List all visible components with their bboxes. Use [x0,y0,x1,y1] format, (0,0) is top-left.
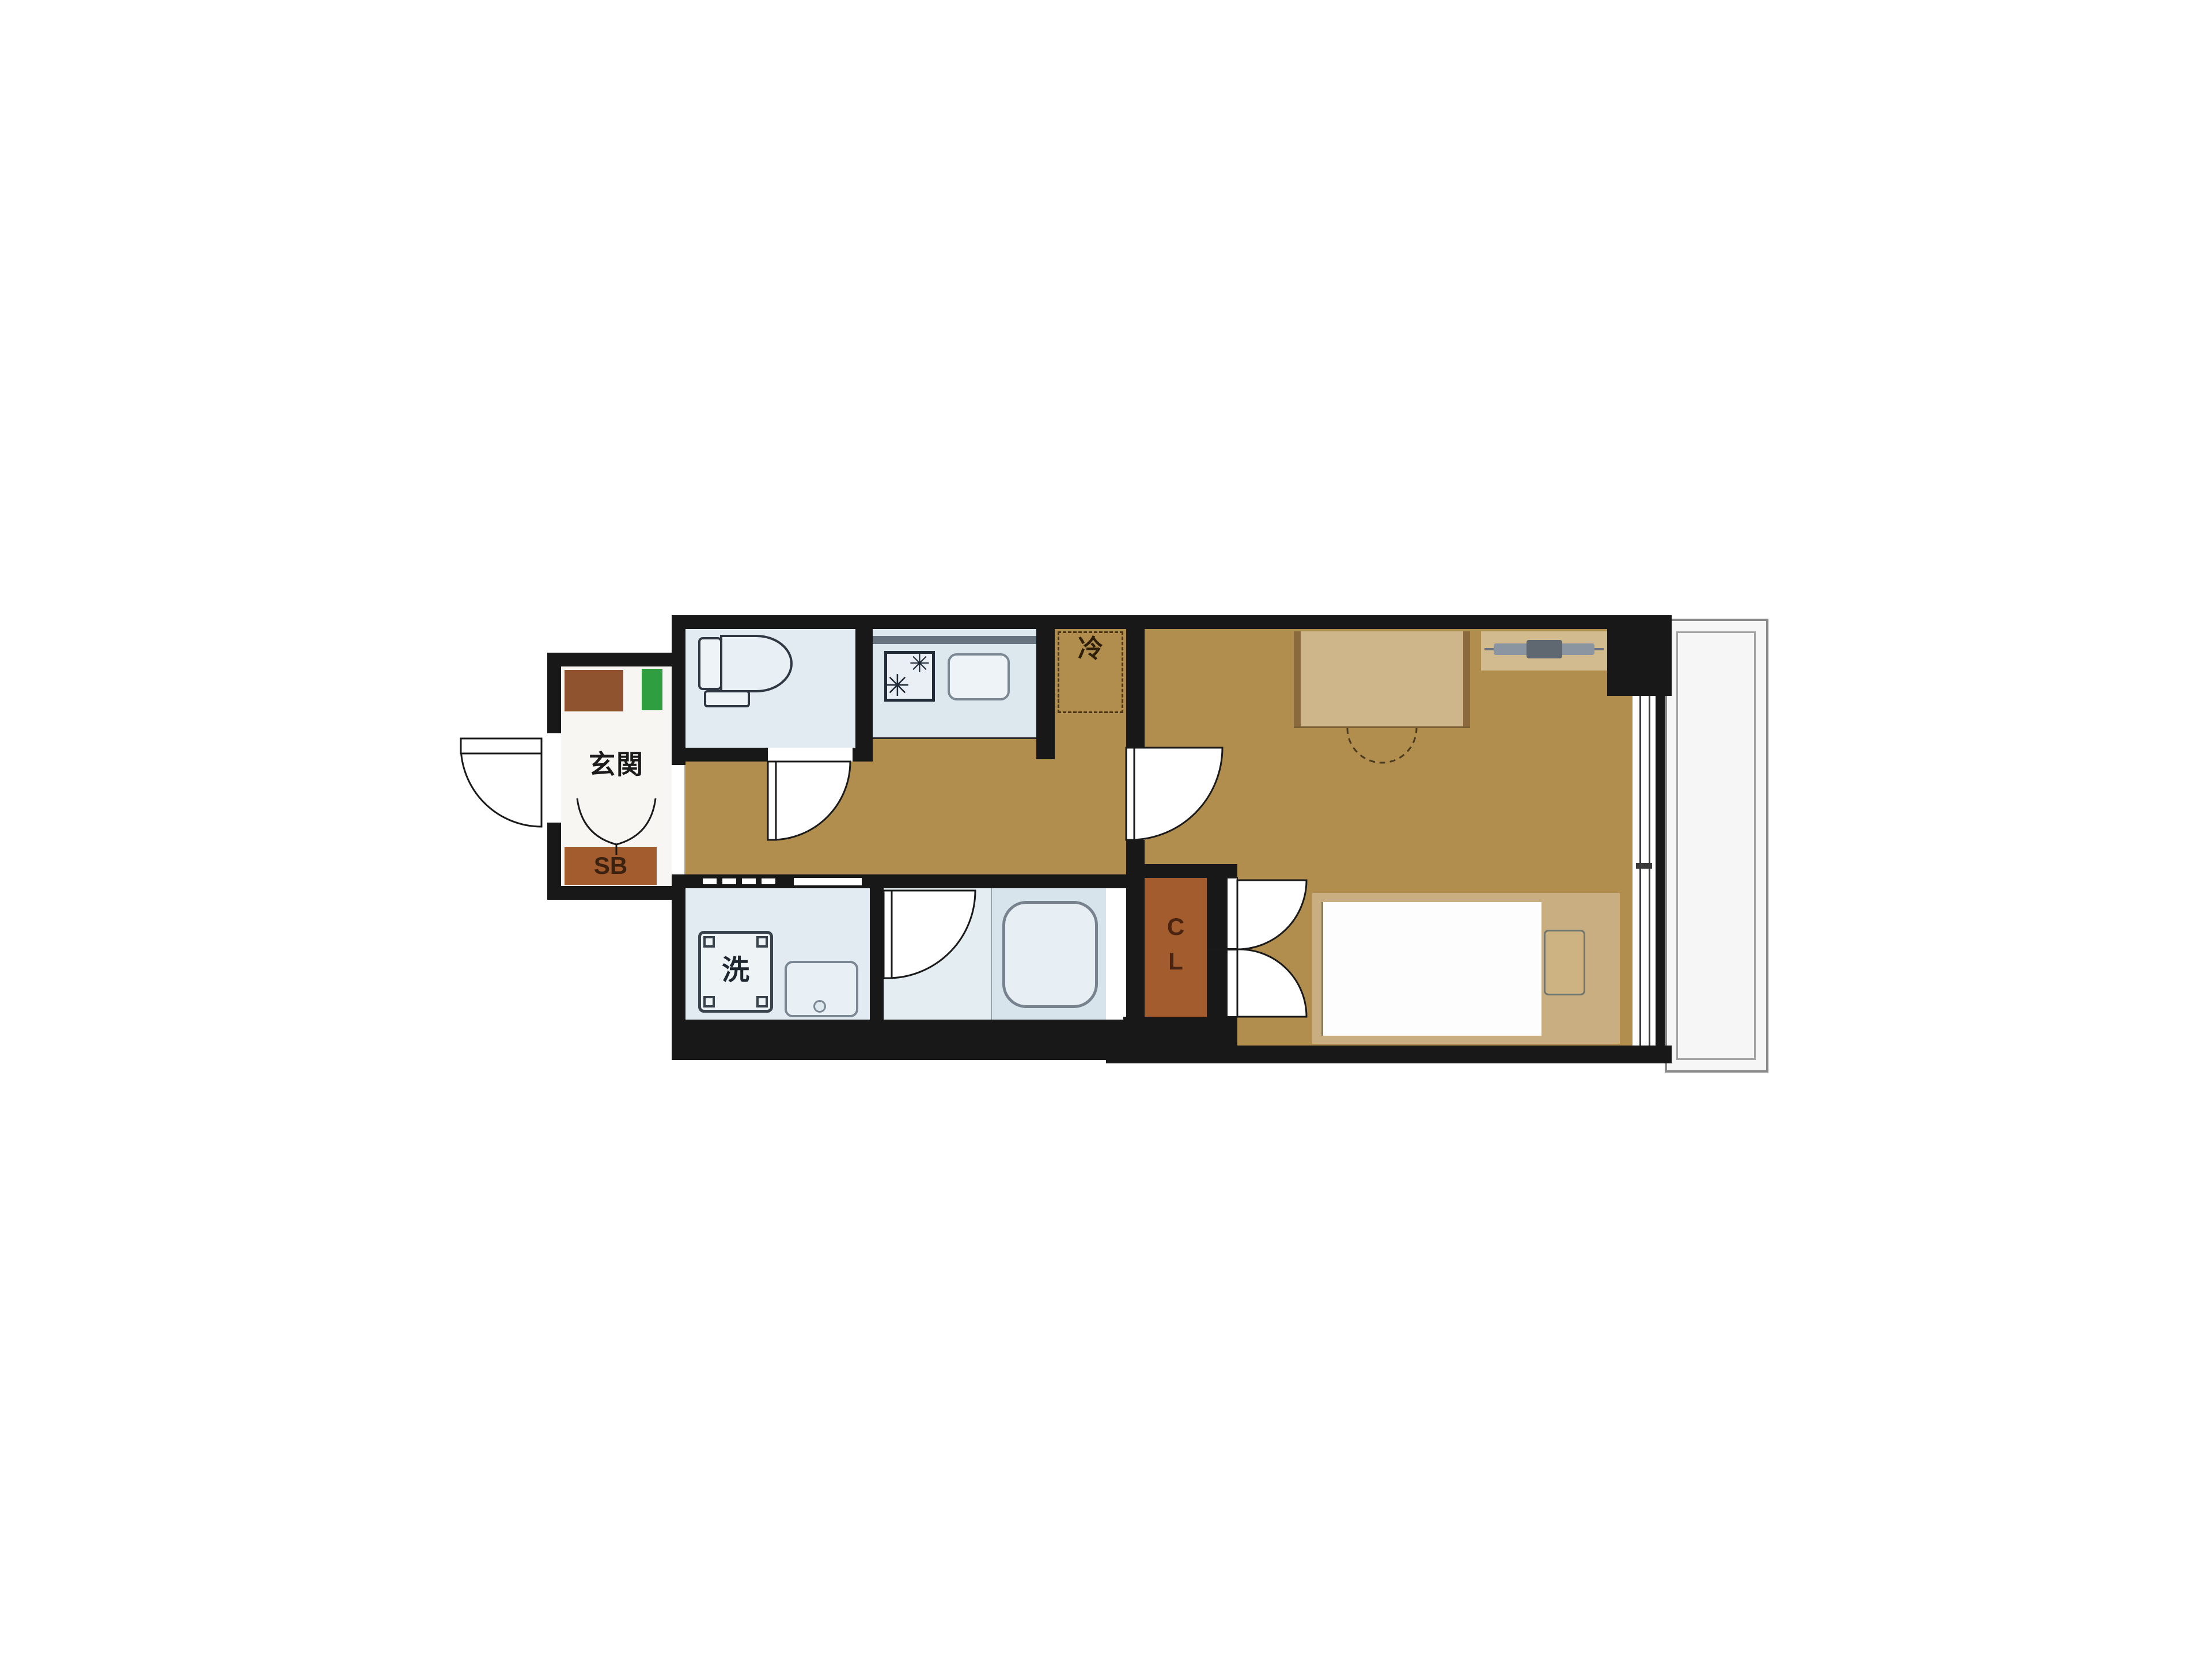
bathroom-door-swing [888,891,975,978]
desk-chair [1347,728,1416,763]
floor-plan: ✳ ✳ 冷 洗 [547,615,1797,1076]
entrance-label: 玄関 [561,751,672,778]
closet-label-l: L [1145,949,1207,974]
shoe-box-label: SB [565,854,657,878]
toilet-door-swing [772,762,850,840]
closet-door-jamb [1227,878,1237,1017]
closet-door-swing-top [1237,880,1306,949]
entrance-door-leaf [461,738,541,753]
toilet-door-leaf [768,762,776,840]
entrance-door-swing [461,746,541,827]
doors-overlay [432,615,1815,1076]
entrance-fan-left [577,798,616,844]
closet-door-swing-bottom [1237,949,1306,1017]
closet-label-c: C [1145,915,1207,939]
room-door-swing [1130,748,1222,840]
room-door-leaf [1126,748,1134,840]
floorplan-page: { "floorplan": { "type": "japanese-apart… [0,0,2212,1659]
bathroom-door-leaf [884,891,892,978]
entrance-fan-right [616,798,656,844]
